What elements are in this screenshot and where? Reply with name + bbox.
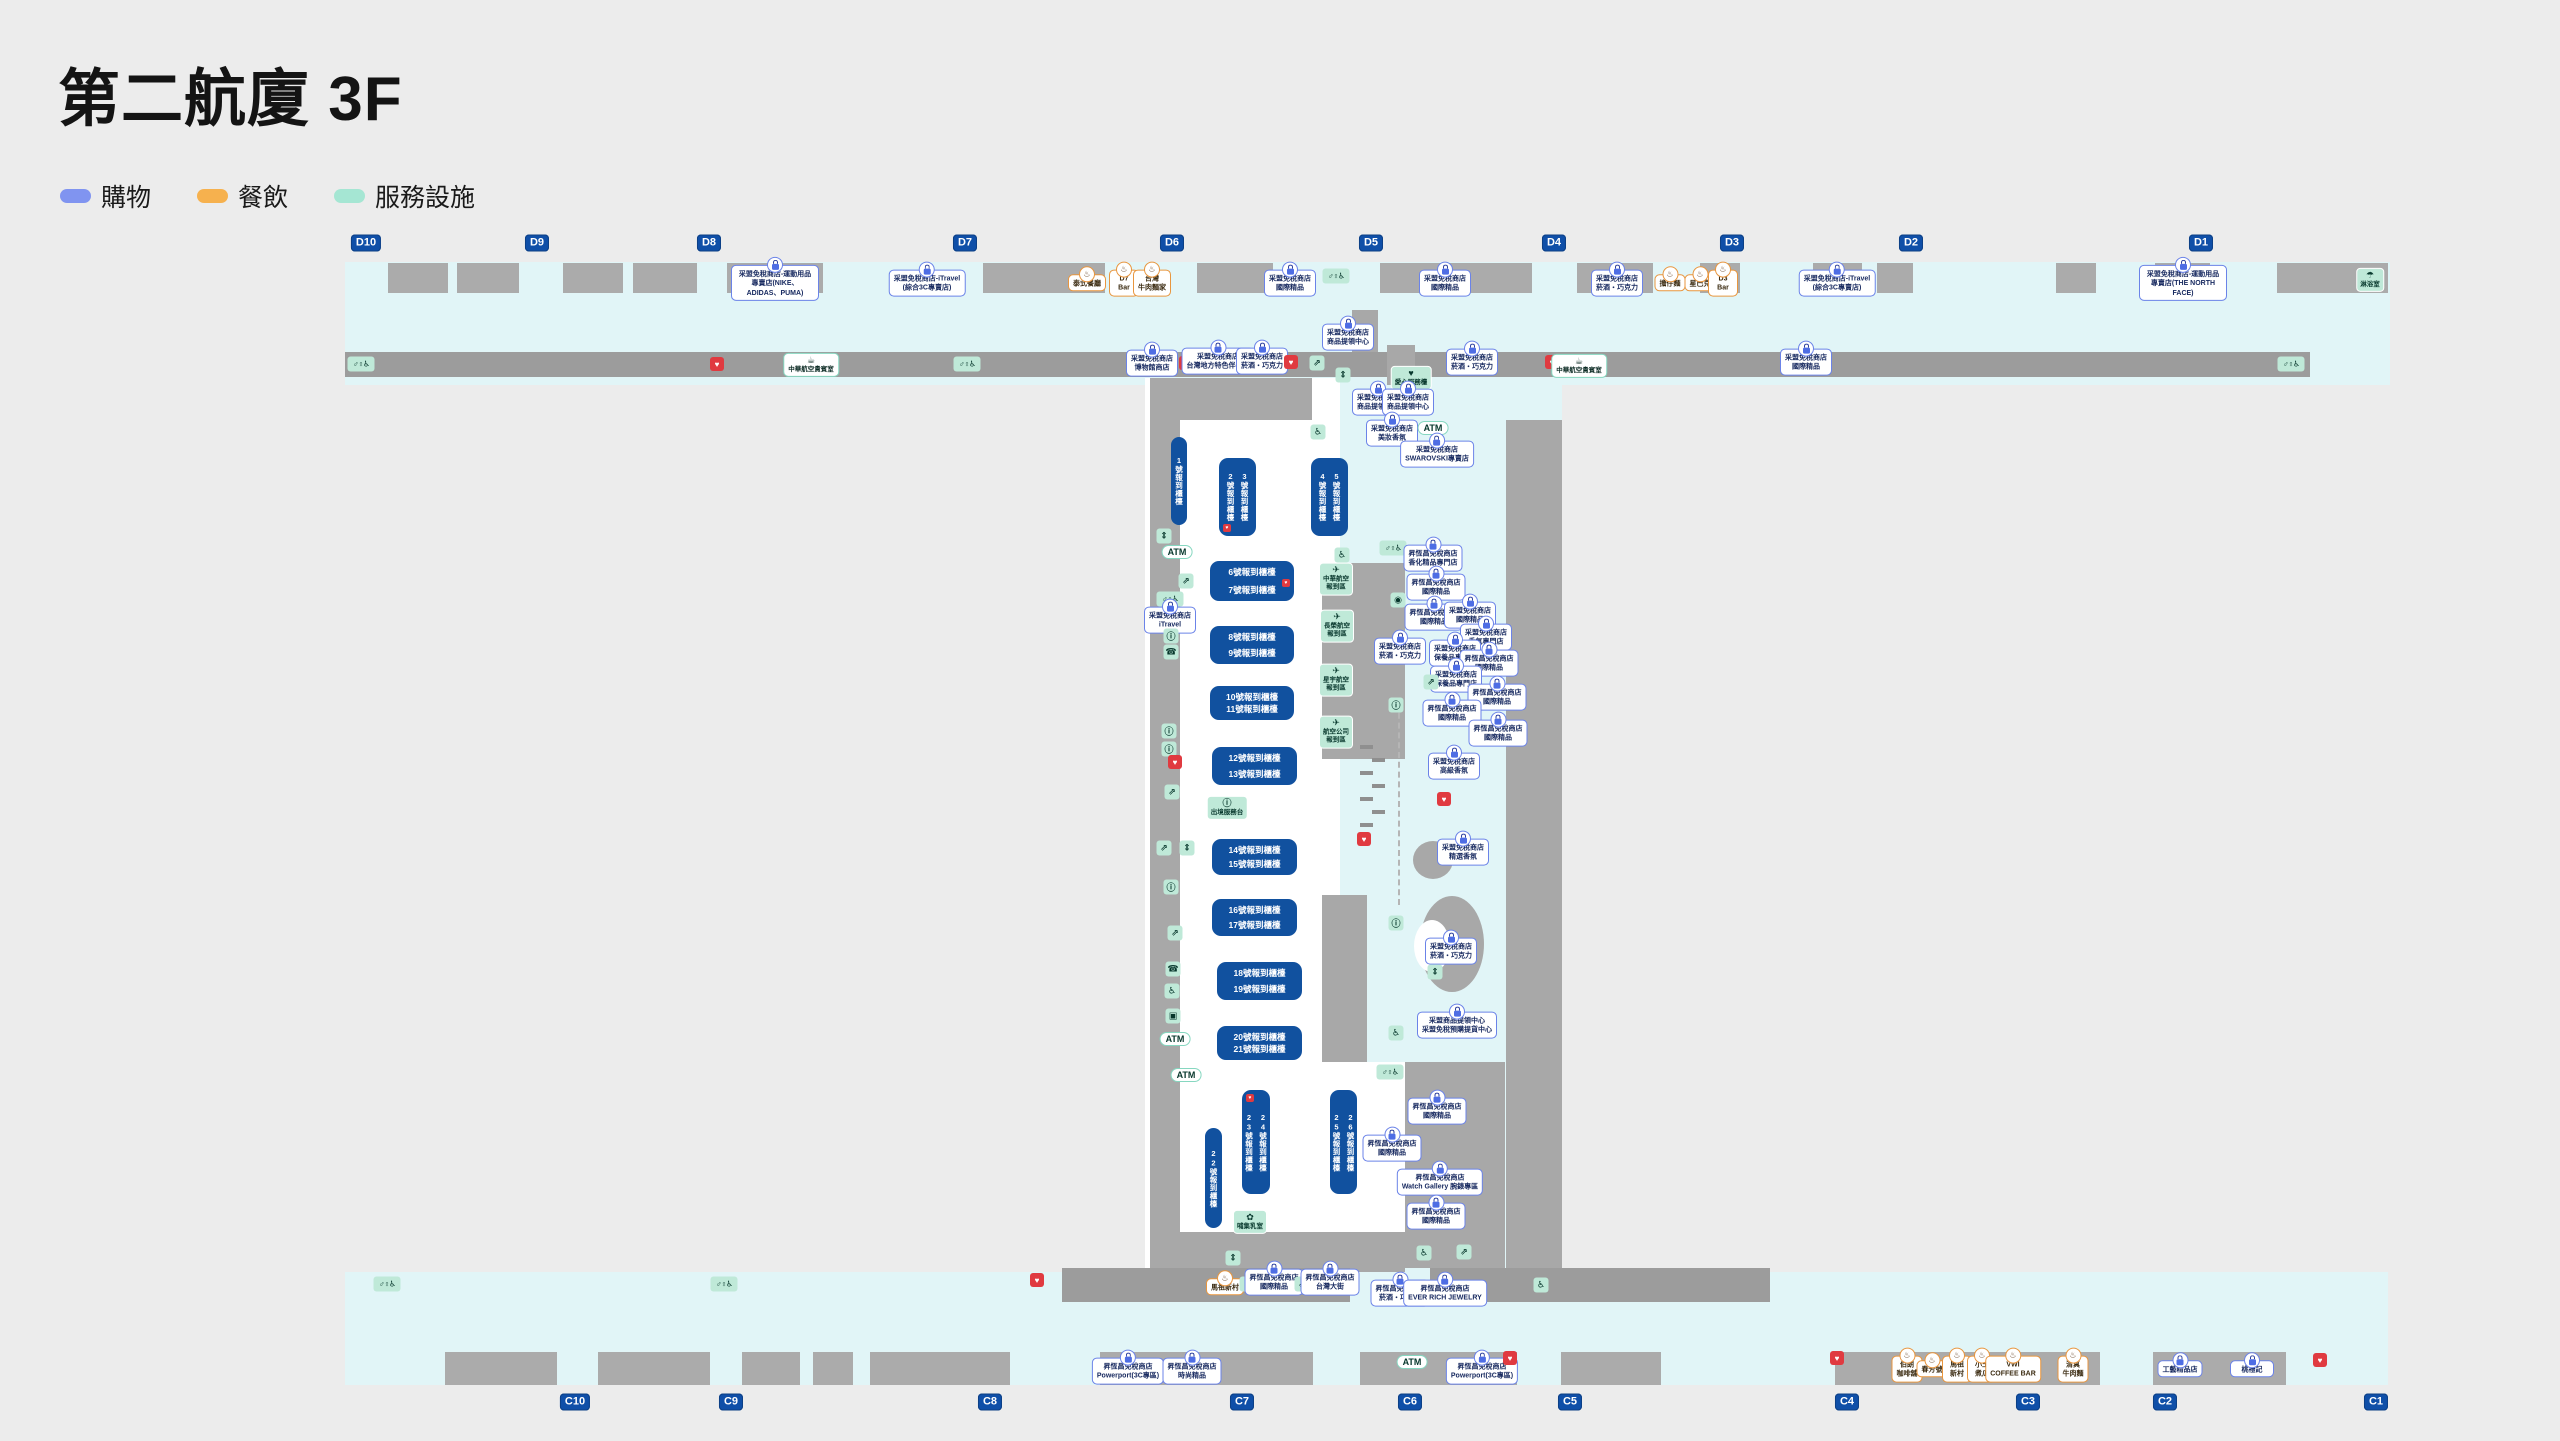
shopping-bag-icon [1829, 262, 1845, 278]
telephone-icon[interactable]: ☎ [1164, 645, 1179, 660]
shopping-bag-icon [1462, 594, 1478, 610]
dining-icon: ♨ [2005, 1348, 2021, 1364]
service-glyph-icon: ♥ [1395, 369, 1428, 379]
gate-block [870, 1352, 1010, 1385]
shop-marker[interactable]: 采盟免稅商店 商品提領中心 [1322, 324, 1374, 351]
service-label[interactable]: ✈星宇航空 報到區 [1319, 664, 1353, 697]
service-glyph-icon: ✈ [1323, 667, 1349, 677]
dining-icon: ♨ [1692, 266, 1708, 282]
dining-icon: ♨ [2069, 1351, 2076, 1362]
aed-icon[interactable]: ♥ [1437, 792, 1451, 806]
shop-marker[interactable]: 采盟免稅商店-iTravel (綜合3C專賣店) [889, 270, 966, 297]
dining-icon: ♨ [1696, 269, 1703, 280]
service-glyph-icon: ✿ [1237, 1213, 1263, 1223]
dining-icon: ♨ [1079, 266, 1095, 282]
shop-marker[interactable]: 采盟免稅商店 國際精品 [1780, 349, 1832, 376]
counter-label: 3號報到櫃檯 [1239, 472, 1250, 522]
shopping-bag-icon [1449, 698, 1456, 704]
information-icon[interactable]: ⓘ [1164, 880, 1179, 895]
checkin-counter[interactable]: 6號報到櫃檯7號報到櫃檯♥ [1210, 561, 1294, 601]
gate-d-d7[interactable]: D7 [953, 235, 977, 252]
aed-icon[interactable]: ♥ [1168, 755, 1182, 769]
checkin-counter[interactable]: 22號報到櫃檯 [1205, 1128, 1222, 1228]
counter-label: 25號報到櫃檯 [1331, 1113, 1342, 1172]
counter-label: 6號報到櫃檯 [1228, 566, 1275, 578]
service-label[interactable]: ✈長榮航空 報到區 [1320, 610, 1354, 643]
shopping-bag-icon [1460, 837, 1467, 843]
service-glyph-icon: ✈ [1324, 613, 1350, 623]
wheelchair-icon[interactable]: ♿ [1165, 984, 1180, 999]
shop-marker[interactable]: 昇恆昌免稅商店 國際精品 [1407, 1203, 1466, 1230]
restaurant-marker[interactable]: 泰式餐廳♨ [1068, 274, 1106, 291]
shopping-bag-icon [1162, 599, 1178, 615]
escalator-icon[interactable]: ⇗ [1157, 841, 1172, 856]
aed-icon[interactable]: ♥ [1503, 1351, 1517, 1365]
shopping-bag-icon [2172, 1352, 2188, 1368]
service-label[interactable]: ☕中華航空貴賓室 [783, 353, 839, 377]
restroom-icon[interactable]: ♂♀♿ [1323, 269, 1350, 284]
shopping-bag-icon [2180, 263, 2187, 269]
shopping-bag-icon [1474, 1350, 1490, 1366]
checkin-counter[interactable]: 12號報到櫃檯13號報到櫃檯 [1212, 747, 1297, 785]
gate-block [1877, 263, 1913, 293]
restroom-icon[interactable]: ♂♀♿ [374, 1277, 401, 1292]
aed-icon[interactable]: ♥ [1284, 355, 1298, 369]
counter-label: 26號報到櫃檯 [1345, 1113, 1356, 1172]
shop-marker[interactable]: 采盟免稅商店 國際精品 [1419, 270, 1471, 297]
shopping-bag-icon [1437, 1167, 1444, 1173]
shop-marker[interactable]: 采盟免稅商店 菸酒・巧克力 [1446, 349, 1498, 376]
shopping-bag-icon [1210, 340, 1226, 356]
security-gate [1360, 797, 1373, 801]
counter-label: 10號報到櫃檯 [1226, 691, 1278, 703]
gate-c-c2[interactable]: C2 [2153, 1394, 2177, 1411]
shopping-bag-icon [1429, 433, 1445, 449]
dining-icon: ♨ [1903, 1351, 1910, 1362]
escalator-icon[interactable]: ⇗ [1310, 356, 1325, 371]
restaurant-marker[interactable]: 清真 牛肉麵♨ [2058, 1356, 2089, 1383]
shop-marker[interactable]: 采盟免稅商店 精選香氛 [1437, 839, 1489, 866]
dining-icon: ♨ [1217, 1270, 1233, 1286]
service-glyph-icon: ☕ [788, 356, 834, 366]
shopping-bag-icon [1400, 381, 1416, 397]
shopping-bag-icon [2249, 1359, 2256, 1365]
structure [1322, 895, 1367, 1065]
shop-marker[interactable]: 桃禮記 [2230, 1360, 2274, 1377]
checkin-counter[interactable]: 2號報到櫃檯3號報到櫃檯♥ [1219, 458, 1256, 536]
dining-icon: ♨ [1120, 265, 1127, 276]
shopping-bag-icon [1397, 636, 1404, 642]
shopping-bag-icon [1609, 262, 1625, 278]
gate-block [445, 1352, 557, 1385]
shopping-bag-icon [1189, 1356, 1196, 1362]
dining-icon: ♨ [1148, 265, 1155, 276]
gate-c-c7[interactable]: C7 [1230, 1394, 1254, 1411]
checkin-counter[interactable]: 10號報到櫃檯11號報到櫃檯 [1210, 686, 1294, 720]
gate-d-d6[interactable]: D6 [1160, 235, 1184, 252]
service-glyph-icon: ☂ [2360, 271, 2380, 281]
shopping-bag-icon [1451, 751, 1458, 757]
counter-label: 5號報到櫃檯 [1331, 472, 1342, 522]
security-gate [1360, 745, 1373, 749]
gate-c-c6[interactable]: C6 [1398, 1394, 1422, 1411]
shopping-bag-icon [1392, 630, 1408, 646]
gate-c-c3[interactable]: C3 [2016, 1394, 2040, 1411]
gate-c-c5[interactable]: C5 [1558, 1394, 1582, 1411]
shopping-bag-icon [1481, 642, 1497, 658]
dining-icon: ♨ [1924, 1352, 1940, 1368]
shopping-bag-icon [1428, 1195, 1444, 1211]
service-glyph-icon: ⓘ [1211, 799, 1244, 809]
gate-block [813, 1352, 853, 1385]
shopping-bag-icon [1431, 602, 1438, 608]
shopping-bag-icon [923, 268, 930, 274]
shopping-bag-icon [1282, 262, 1298, 278]
shopping-bag-icon [1494, 682, 1501, 688]
gate-block [1197, 263, 1273, 293]
shopping-bag-icon [1495, 718, 1502, 724]
dining-icon: ♨ [2065, 1348, 2081, 1364]
shopping-bag-icon [1444, 692, 1460, 708]
wheelchair-icon[interactable]: ♿ [1417, 1246, 1432, 1261]
dining-icon: ♨ [1953, 1351, 1960, 1362]
wheelchair-icon[interactable]: ♿ [1389, 1026, 1404, 1041]
counter-label: 1號報到櫃檯 [1174, 456, 1185, 506]
wheelchair-icon[interactable]: ♿ [1311, 425, 1326, 440]
elevator-icon[interactable]: ⇕ [1226, 1251, 1241, 1266]
shopping-bag-icon [1287, 268, 1294, 274]
elevator-icon[interactable]: ⇕ [1180, 841, 1195, 856]
restaurant-marker[interactable]: 馬祖新村♨ [1206, 1278, 1244, 1295]
shopping-bag-icon [1433, 1201, 1440, 1207]
shopping-bag-icon [1467, 600, 1474, 606]
service-label[interactable]: ✈航空公司 報到區 [1319, 716, 1353, 749]
counter-label: 2號報到櫃檯 [1225, 472, 1236, 522]
shopping-bag-icon [1266, 1261, 1282, 1277]
service-label[interactable]: ⓘ出境服務台 [1207, 796, 1248, 820]
atm-badge[interactable]: ATM [1162, 545, 1193, 559]
shop-marker[interactable]: 采盟免稅商店 菸酒・巧克力 [1236, 348, 1288, 375]
shopping-bag-icon [1454, 1010, 1461, 1016]
counter-label: 21號報到櫃檯 [1234, 1043, 1286, 1055]
escalator-icon[interactable]: ⇗ [1424, 675, 1439, 690]
gate-block [457, 263, 519, 293]
escalator-icon[interactable]: ⇗ [1457, 1245, 1472, 1260]
checkin-counter[interactable]: 23號報到櫃檯24號報到櫃檯♥ [1242, 1090, 1270, 1194]
restroom-icon[interactable]: ♂♀♿ [348, 357, 375, 372]
shop-marker[interactable]: 采盟免稅商店 SWAROVSKI專賣店 [1400, 441, 1474, 468]
security-gate [1372, 784, 1385, 788]
security-gate [1360, 771, 1373, 775]
gate-d-d8[interactable]: D8 [697, 235, 721, 252]
shopping-bag-icon [919, 262, 935, 278]
atm-badge[interactable]: ATM [1397, 1355, 1428, 1369]
service-label[interactable]: ✈中華航空 報到區 [1319, 563, 1353, 596]
shopping-bag-icon [1803, 347, 1810, 353]
shopping-bag-icon [1389, 418, 1396, 424]
shopping-bag-icon [1271, 1267, 1278, 1273]
dining-icon: ♨ [1949, 1348, 1965, 1364]
aed-icon[interactable]: ♥ [710, 357, 724, 371]
shopping-bag-icon [1798, 341, 1814, 357]
shop-marker[interactable]: 采盟免稅商店 菸酒・巧克力 [1374, 638, 1426, 665]
service-glyph-icon: ☕ [1556, 357, 1602, 367]
checkin-counter[interactable]: 25號報到櫃檯26號報到櫃檯 [1330, 1090, 1357, 1194]
gate-c-c1[interactable]: C1 [2364, 1394, 2388, 1411]
counter-label: 14號報到櫃檯 [1229, 844, 1281, 856]
escalator-icon[interactable]: ⇗ [1179, 574, 1194, 589]
gate-d-d4[interactable]: D4 [1542, 235, 1566, 252]
checkin-counter[interactable]: 14號報到櫃檯15號報到櫃檯 [1212, 839, 1297, 875]
shopping-bag-icon [1429, 1090, 1445, 1106]
shopping-bag-icon [1478, 1356, 1485, 1362]
gate-d-d10[interactable]: D10 [351, 235, 381, 252]
shopping-bag-icon [1478, 616, 1494, 632]
shopping-bag-icon [1430, 543, 1437, 549]
structure [1150, 378, 1312, 420]
checkin-counter[interactable]: 20號報到櫃檯21號報到櫃檯 [1217, 1026, 1302, 1060]
gate-c-c8[interactable]: C8 [978, 1394, 1002, 1411]
counter-label: 7號報到櫃檯 [1228, 584, 1275, 596]
shop-marker[interactable]: 采盟免稅商店 國際精品 [1264, 270, 1316, 297]
gate-c-c9[interactable]: C9 [719, 1394, 743, 1411]
shop-marker[interactable]: 昇恆昌免稅商店 台灣大街 [1301, 1269, 1360, 1296]
terminal-map: D10D9D8D7D6D5D4D3D2D1C10C9C8C7C6C5C4C3C2… [0, 0, 2560, 1441]
escalator-icon[interactable]: ⇗ [1168, 926, 1183, 941]
gate-d-d3[interactable]: D3 [1720, 235, 1744, 252]
restroom-icon[interactable]: ♂♀♿ [1377, 1065, 1404, 1080]
shopping-bag-icon [1437, 262, 1453, 278]
water-fountain-icon[interactable]: ◉ [1391, 593, 1406, 608]
atm-badge[interactable]: ATM [1160, 1032, 1191, 1046]
service-glyph-icon: ✈ [1323, 719, 1349, 729]
shopping-bag-icon [1453, 664, 1460, 670]
dining-icon: ♨ [1928, 1355, 1935, 1366]
shopping-bag-icon [1434, 1096, 1441, 1102]
shopping-bag-icon [1149, 348, 1156, 354]
dining-icon: ♨ [1662, 266, 1678, 282]
checkin-counter[interactable]: 1號報到櫃檯 [1171, 437, 1187, 525]
shopping-bag-icon [1452, 638, 1459, 644]
shopping-bag-icon [1259, 346, 1266, 352]
restaurant-marker[interactable]: 台灣 牛肉麵家♨ [1133, 270, 1171, 297]
counter-label: 12號報到櫃檯 [1229, 752, 1281, 764]
shopping-bag-icon [1448, 936, 1455, 942]
service-label[interactable]: ✿哺集乳室 [1233, 1210, 1267, 1234]
aed-icon: ♥ [1246, 1094, 1254, 1102]
counter-label: 11號報到櫃檯 [1226, 703, 1278, 715]
dining-icon: ♨ [1083, 269, 1090, 280]
dining-icon: ♨ [1719, 265, 1726, 276]
shopping-bag-icon [1448, 658, 1464, 674]
dining-icon: ♨ [1144, 262, 1160, 278]
security-gate [1372, 758, 1385, 762]
structure [1506, 420, 1562, 1268]
dining-icon: ♨ [1116, 262, 1132, 278]
shopping-bag-icon [1389, 1133, 1396, 1139]
shopping-bag-icon [2175, 257, 2191, 273]
checkin-counter[interactable]: 8號報到櫃檯9號報到櫃檯 [1210, 626, 1294, 664]
shop-marker[interactable]: 采盟免稅商店 高級香氛 [1428, 753, 1480, 780]
shop-marker[interactable]: 采盟免稅商店-運動用品 專賣店(THE NORTH FACE) [2139, 265, 2227, 301]
gate-c-c4[interactable]: C4 [1835, 1394, 1859, 1411]
shopping-bag-icon [1167, 605, 1174, 611]
shopping-bag-icon [1120, 1350, 1136, 1366]
counter-label: 22號報到櫃檯 [1208, 1149, 1219, 1208]
shop-marker[interactable]: 昇恆昌免稅商店 國際精品 [1469, 720, 1528, 747]
shopping-bag-icon [1447, 632, 1463, 648]
escalator-icon[interactable]: ⇗ [1165, 785, 1180, 800]
shopping-bag-icon [1833, 268, 1840, 274]
aed-icon: ♥ [1282, 579, 1290, 587]
dining-icon: ♨ [1899, 1348, 1915, 1364]
service-label[interactable]: ☂淋浴室 [2356, 268, 2384, 292]
counter-label: 20號報到櫃檯 [1234, 1031, 1286, 1043]
information-icon[interactable]: ⓘ [1162, 724, 1177, 739]
wheelchair-icon[interactable]: ♿ [1335, 548, 1350, 563]
shopping-bag-icon [1215, 346, 1222, 352]
shopping-bag-icon [1184, 1350, 1200, 1366]
restaurant-marker[interactable]: D3 Bar♨ [1708, 270, 1738, 297]
counter-label: 24號報到櫃檯 [1258, 1113, 1269, 1172]
restroom-icon[interactable]: ♂♀♿ [711, 1277, 738, 1292]
shop-marker[interactable]: 采盟免稅商店-iTravel (綜合3C專賣店) [1799, 270, 1876, 297]
d-walkway [345, 352, 2310, 377]
aed-icon[interactable]: ♥ [2313, 1353, 2327, 1367]
gate-d-d2[interactable]: D2 [1899, 235, 1923, 252]
counter-label: 13號報到櫃檯 [1229, 768, 1281, 780]
counter-label: 18號報到櫃檯 [1234, 967, 1286, 979]
aed-icon: ♥ [1223, 524, 1231, 532]
shopping-bag-icon [1614, 268, 1621, 274]
shopping-bag-icon [1486, 648, 1493, 654]
shopping-bag-icon [1433, 439, 1440, 445]
counter-label: 19號報到櫃檯 [1234, 983, 1286, 995]
shop-marker[interactable]: 采盟免稅商店 菸酒・巧克力 [1425, 938, 1477, 965]
information-icon[interactable]: ⓘ [1389, 916, 1404, 931]
gate-block [563, 263, 623, 293]
counter-label: 15號報到櫃檯 [1229, 858, 1281, 870]
shopping-bag-icon [1345, 322, 1352, 328]
restaurant-marker[interactable]: 擔仔麵♨ [1655, 274, 1686, 291]
aed-icon[interactable]: ♥ [1357, 832, 1371, 846]
counter-label: 9號報到櫃檯 [1228, 647, 1275, 659]
gate-d-d1[interactable]: D1 [2189, 235, 2213, 252]
shop-marker[interactable]: 昇恆昌免稅商店 時尚精品 [1163, 1358, 1222, 1385]
shop-marker[interactable]: 昇恆昌免稅商店 Powerport(3C專區) [1092, 1358, 1164, 1385]
dining-icon: ♨ [1666, 269, 1673, 280]
locker-icon[interactable]: ▣ [1166, 1009, 1181, 1024]
service-glyph-icon: ✈ [1323, 566, 1349, 576]
restroom-icon[interactable]: ♂♀♿ [2278, 357, 2305, 372]
information-icon[interactable]: ⓘ [1164, 629, 1179, 644]
shopping-bag-icon [2244, 1352, 2260, 1368]
shopping-bag-icon [1327, 1267, 1334, 1273]
shopping-bag-icon [1469, 347, 1476, 353]
gate-block [2056, 263, 2096, 293]
restaurant-marker[interactable]: VWI COFFEE BAR♨ [1985, 1356, 2041, 1383]
shopping-bag-icon [1446, 745, 1462, 761]
shopping-bag-icon [1428, 566, 1444, 582]
shopping-bag-icon [1254, 340, 1270, 356]
shopping-bag-icon [1124, 1356, 1131, 1362]
shop-marker[interactable]: 昇恆昌免稅商店 Watch Gallery 腕錶專區 [1397, 1169, 1483, 1196]
counter-label: 17號報到櫃檯 [1229, 919, 1281, 931]
shopping-bag-icon [1455, 831, 1471, 847]
shopping-bag-icon [1384, 1127, 1400, 1143]
shop-marker[interactable]: 采盟免稅商店 菸酒・巧克力 [1591, 270, 1643, 297]
queue-line [1398, 703, 1402, 905]
wheelchair-icon[interactable]: ♿ [1534, 1278, 1549, 1293]
shop-marker[interactable]: 采盟免稅商店-運動用品 專賣店(NIKE、ADIDAS、PUMA) [731, 265, 819, 301]
elevator-icon[interactable]: ⇕ [1428, 965, 1443, 980]
restroom-icon[interactable]: ♂♀♿ [954, 357, 981, 372]
shop-marker[interactable]: 昇恆昌免稅商店 國際精品 [1408, 1098, 1467, 1125]
shopping-bag-icon [772, 263, 779, 269]
aed-icon[interactable]: ♥ [1030, 1273, 1044, 1287]
shopping-bag-icon [1425, 537, 1441, 553]
shopping-bag-icon [1437, 1272, 1453, 1288]
counter-label: 8號報到櫃檯 [1228, 631, 1275, 643]
security-gate [1360, 823, 1373, 827]
dining-icon: ♨ [2009, 1351, 2016, 1362]
aed-icon[interactable]: ♥ [1830, 1351, 1844, 1365]
shopping-bag-icon [1405, 387, 1412, 393]
gate-d-d9[interactable]: D9 [525, 235, 549, 252]
shopping-bag-icon [1426, 596, 1442, 612]
shop-marker[interactable]: 采盟商品提領中心 采盟免稅預購提貨中心 [1417, 1012, 1497, 1039]
shop-marker[interactable]: 昇恆昌免稅商店 EVER RICH JEWELRY [1403, 1280, 1487, 1307]
gate-c-c10[interactable]: C10 [560, 1394, 590, 1411]
dining-icon: ♨ [1715, 262, 1731, 278]
shop-marker[interactable]: 工藝精品店 [2158, 1360, 2203, 1377]
dining-icon: ♨ [1221, 1273, 1228, 1284]
shopping-bag-icon [767, 257, 783, 273]
gate-block [388, 263, 448, 293]
service-label[interactable]: ☕中華航空貴賓室 [1551, 354, 1607, 378]
shopping-bag-icon [1433, 572, 1440, 578]
checkin-counter[interactable]: 4號報到櫃檯5號報到櫃檯 [1311, 458, 1348, 536]
restroom-icon[interactable]: ♂♀♿ [1380, 541, 1407, 556]
shopping-bag-icon [1340, 316, 1356, 332]
counter-label: 4號報到櫃檯 [1317, 472, 1328, 522]
checkin-counter[interactable]: 16號報到櫃檯17號報到櫃檯 [1212, 899, 1297, 936]
shopping-bag-icon [1490, 712, 1506, 728]
shopping-bag-icon [1432, 1161, 1448, 1177]
gate-block [742, 1352, 800, 1385]
gate-d-d5[interactable]: D5 [1359, 235, 1383, 252]
information-icon[interactable]: ⓘ [1389, 698, 1404, 713]
shopping-bag-icon [1322, 1261, 1338, 1277]
shopping-bag-icon [1449, 1004, 1465, 1020]
elevator-icon[interactable]: ⇕ [1157, 529, 1172, 544]
elevator-icon[interactable]: ⇕ [1336, 368, 1351, 383]
gate-block [633, 263, 697, 293]
checkin-counter[interactable]: 18號報到櫃檯19號報到櫃檯 [1217, 962, 1302, 1000]
gate-block [1561, 1352, 1661, 1385]
shop-marker[interactable]: 采盟免稅商店 博物館商店 [1126, 350, 1178, 377]
shopping-bag-icon [1464, 341, 1480, 357]
shopping-bag-icon [2177, 1359, 2184, 1365]
shopping-bag-icon [1441, 1278, 1448, 1284]
shopping-bag-icon [1483, 622, 1490, 628]
counter-label: 23號報到櫃檯 [1244, 1113, 1255, 1172]
shopping-bag-icon [1384, 412, 1400, 428]
shop-marker[interactable]: 昇恆昌免稅商店 國際精品 [1363, 1135, 1422, 1162]
shopping-bag-icon [1442, 268, 1449, 274]
atm-badge[interactable]: ATM [1171, 1068, 1202, 1082]
telephone-icon[interactable]: ☎ [1166, 962, 1181, 977]
